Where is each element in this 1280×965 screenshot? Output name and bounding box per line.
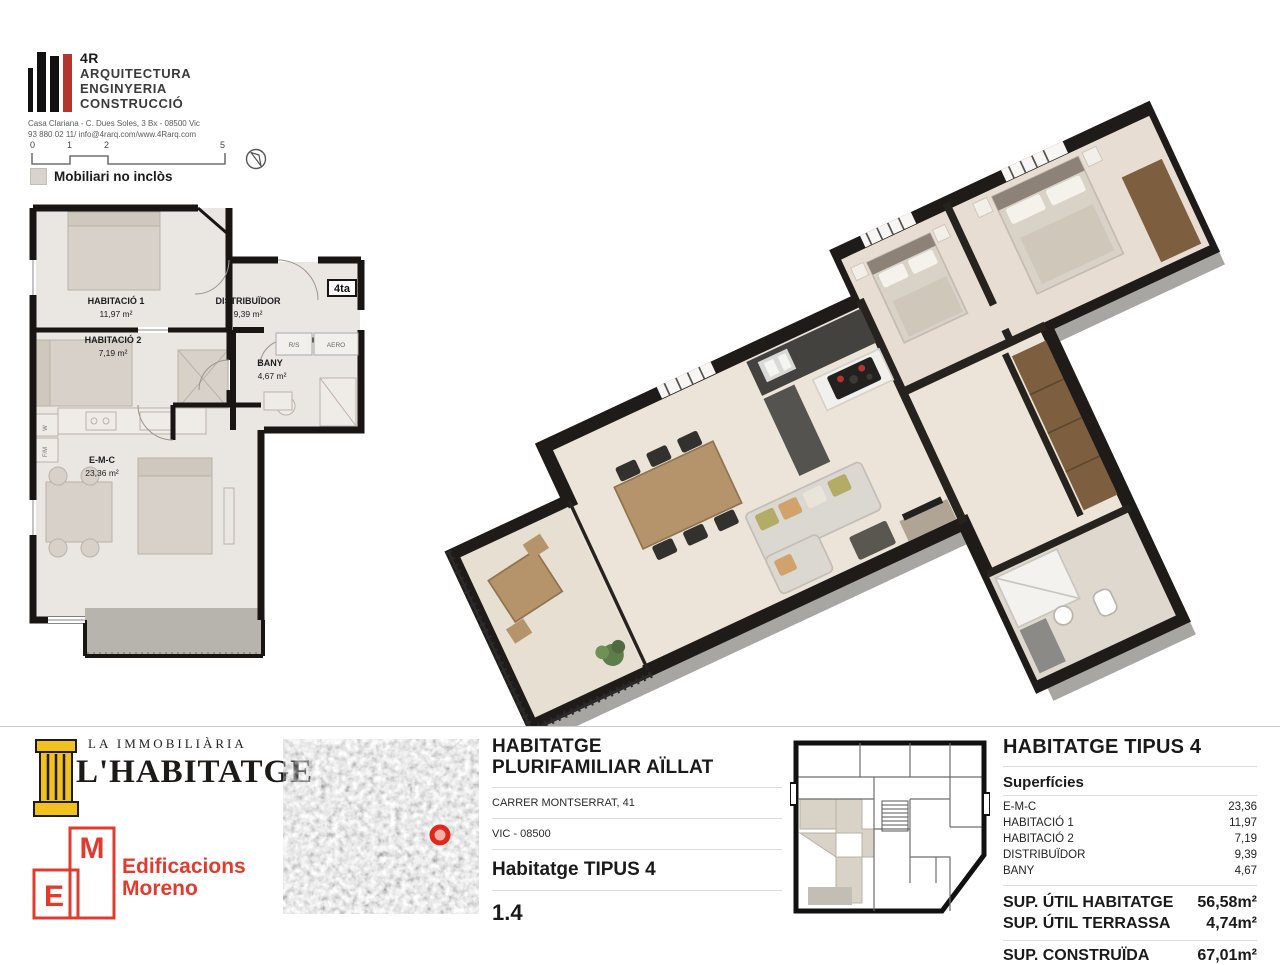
svg-text:4ta: 4ta [334,283,351,295]
unit-code: 1.4 [492,900,782,926]
floor-badge: 4ta [328,280,356,296]
sink [264,392,292,410]
area-row: BANY4,67 [1003,863,1257,879]
key-plan [790,737,990,917]
unit-name: Habitatge TIPUS 4 [492,859,782,881]
architect-logo: 4R ARQUITECTURA ENGINYERIA CONSTRUCCIÓ [28,50,191,112]
em-mark: M E [30,824,120,924]
builder-logo: M E Edificacions Moreno [30,824,270,924]
svg-text:E-M-C: E-M-C [89,455,115,465]
brand-line3: CONSTRUCCIÓ [80,96,191,111]
area-row: DISTRIBUÏDOR9,39 [1003,847,1257,863]
built-row: SUP. CONSTRUÏDA67,01m² [1003,947,1257,965]
north-compass-icon [243,146,269,172]
map-marker [432,827,448,843]
svg-text:R/S: R/S [289,342,301,349]
plan-sheet: { "brand": { "name": "4R", "line1": "ARQ… [0,0,1280,960]
furniture-legend: Mobiliari no inclòs [30,168,173,185]
svg-text:DISTRIBUÏDOR: DISTRIBUÏDOR [216,296,282,306]
area-row: E-M-C23,36 [1003,799,1257,815]
svg-text:AERO: AERO [327,342,345,349]
svg-text:HABITACIÓ 2: HABITACIÓ 2 [85,334,142,345]
svg-text:23,36 m²: 23,36 m² [85,468,119,478]
builder-name: Edificacions Moreno [122,856,246,900]
svg-text:11,97 m²: 11,97 m² [100,309,133,319]
svg-text:F/M: F/M [43,447,49,457]
total-row: SUP. ÚTIL TERRASSA4,74m² [1003,913,1257,934]
svg-text:7,19 m²: 7,19 m² [99,348,128,358]
project-address: CARRER MONTSERRAT, 41 [492,797,782,809]
architect-logo-bars [28,50,72,112]
project-info: HABITATGE PLURIFAMILIAR AÏLLAT CARRER MO… [492,736,782,926]
render-apartment [392,104,1268,726]
sheet-divider [0,726,1280,727]
legend-swatch [30,168,47,185]
architect-address: Casa Clariana - C. Dues Soles, 3 Bx - 08… [28,118,200,140]
total-row: SUP. ÚTIL HABITATGE56,58m² [1003,892,1257,913]
kitchen-counter [58,408,206,434]
brand-name: 4R [80,50,191,66]
keyplan-terrace [808,887,852,905]
column-icon [30,738,82,820]
map-imagery [283,739,479,914]
svg-text:W: W [43,425,49,431]
project-title: HABITATGE PLURIFAMILIAR AÏLLAT [492,736,782,778]
summary-subtitle: Superfícies [1003,774,1257,791]
summary-title: HABITATGE TIPUS 4 [1003,736,1257,759]
svg-text:E: E [44,880,64,913]
location-map [283,739,479,914]
agency-name: L'HABITATGE [76,754,262,791]
render-3d [388,90,1268,726]
floor-plan-2d: HABITACIÓ 1 11,97 m² HABITACIÓ 2 7,19 m²… [28,200,368,662]
brand-line2: ENGINYERIA [80,81,191,96]
svg-text:M: M [80,832,105,865]
area-row: HABITACIÓ 27,19 [1003,831,1257,847]
dining-table [46,482,112,542]
svg-text:4,67 m²: 4,67 m² [258,371,287,381]
brand-line1: ARQUITECTURA [80,66,191,81]
area-row: HABITACIÓ 111,97 [1003,815,1257,831]
svg-text:BANY: BANY [257,358,283,368]
project-city: VIC - 08500 [492,828,782,840]
unit-summary: HABITATGE TIPUS 4 Superfícies E-M-C23,36… [1003,736,1257,965]
svg-text:HABITACIÓ 1: HABITACIÓ 1 [88,295,145,306]
scale-bar-graphic [30,151,230,167]
agency-tagline: LA IMMOBILIÀRIA [88,736,262,752]
svg-text:9,39 m²: 9,39 m² [234,309,263,319]
agency-logo: LA IMMOBILIÀRIA L'HABITATGE [30,736,262,791]
